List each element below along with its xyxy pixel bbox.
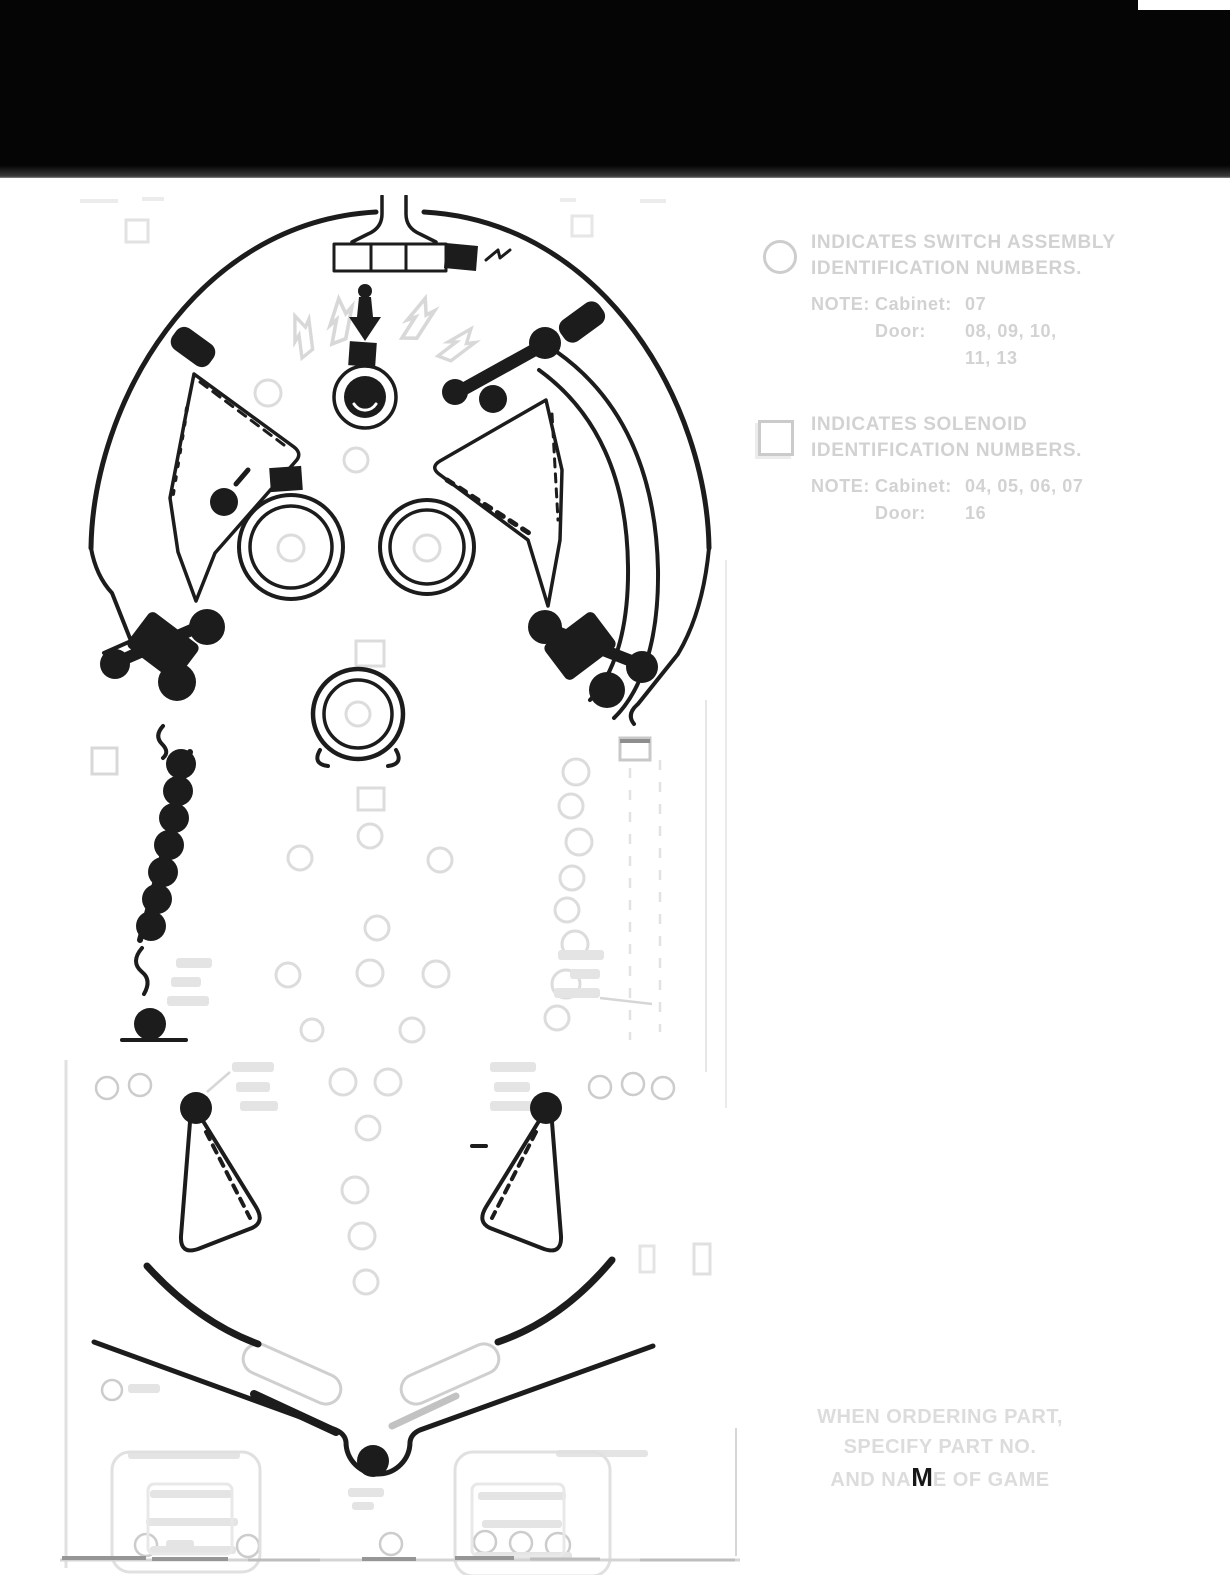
solenoid-note-row1: NOTE:Cabinet:04, 05, 06, 07 bbox=[811, 473, 1084, 500]
solenoid-legend-line1: INDICATES SOLENOID bbox=[811, 412, 1084, 438]
shooter-lane bbox=[352, 196, 436, 242]
solenoid-legend-line2: IDENTIFICATION NUMBERS. bbox=[811, 438, 1084, 464]
line3-highlight-M: M bbox=[911, 1462, 933, 1492]
switch-symbol-circle-icon bbox=[763, 240, 797, 274]
line3-post: E OF GAME bbox=[933, 1469, 1050, 1491]
door-value: 16 bbox=[965, 503, 986, 523]
left-jet-bumper bbox=[239, 495, 343, 599]
legend-solenoid-block: INDICATES SOLENOID IDENTIFICATION NUMBER… bbox=[752, 412, 1084, 527]
left-slingshot bbox=[180, 1092, 260, 1250]
illegible-annotations bbox=[128, 950, 648, 1560]
switch-legend-line1: INDICATES SWITCH ASSEMBLY bbox=[811, 230, 1116, 256]
line3-pre: AND NA bbox=[830, 1469, 911, 1491]
door-label: Door: bbox=[875, 500, 965, 527]
scanned-page: INDICATES SWITCH ASSEMBLY IDENTIFICATION… bbox=[0, 0, 1230, 1589]
edge-specks bbox=[80, 199, 666, 201]
cabinet-value: 07 bbox=[965, 294, 986, 314]
switch-note-row2: Door:08, 09, 10, bbox=[811, 318, 1116, 345]
door-value-line2: 11, 13 bbox=[965, 348, 1018, 368]
drain-ball bbox=[357, 1445, 389, 1477]
door-label: Door: bbox=[875, 318, 965, 345]
header-redaction-bar bbox=[0, 0, 1230, 178]
solenoid-square-dark bbox=[269, 466, 303, 492]
cabinet-label: Cabinet: bbox=[875, 291, 965, 318]
center-bumper bbox=[313, 669, 403, 766]
top-lane-guides bbox=[334, 243, 510, 271]
rollover-circles bbox=[255, 380, 592, 1294]
ordering-note-line1: WHEN ORDERING PART, bbox=[795, 1402, 1085, 1432]
note-label: NOTE: bbox=[811, 473, 875, 500]
bottom-edge bbox=[60, 1558, 740, 1560]
ink-layer bbox=[91, 196, 709, 1477]
corner-mark-left bbox=[126, 220, 148, 242]
annotation-leader-lines bbox=[207, 998, 652, 1092]
return-guides bbox=[147, 1260, 612, 1344]
switch-note-row3: 11, 13 bbox=[811, 345, 1116, 372]
top-bumper bbox=[334, 366, 396, 428]
ordering-note-line3: AND NAME OF GAME bbox=[795, 1462, 1085, 1495]
right-jet-bumper bbox=[380, 500, 474, 594]
header-notch bbox=[1138, 0, 1230, 10]
solenoid-note-row2: Door:16 bbox=[811, 500, 1084, 527]
right-kicker bbox=[528, 610, 658, 708]
drop-target-bank bbox=[122, 726, 196, 1040]
note-label: NOTE: bbox=[811, 291, 875, 318]
door-value-line1: 08, 09, 10, bbox=[965, 321, 1057, 341]
arch-outline bbox=[91, 212, 709, 548]
ordering-note: WHEN ORDERING PART, SPECIFY PART NO. AND… bbox=[795, 1402, 1085, 1495]
playfield-diagram bbox=[60, 195, 740, 1575]
ordering-note-line2: SPECIFY PART NO. bbox=[795, 1432, 1085, 1462]
cabinet-label: Cabinet: bbox=[875, 473, 965, 500]
right-slingshot bbox=[472, 1092, 562, 1250]
left-kicker bbox=[100, 609, 225, 701]
solenoid-symbol-square-icon bbox=[758, 420, 794, 456]
cabinet-value: 04, 05, 06, 07 bbox=[965, 476, 1084, 496]
right-lane-guide bbox=[435, 400, 562, 606]
plunger-arrow-icon bbox=[348, 284, 381, 367]
legend-switch-block: INDICATES SWITCH ASSEMBLY IDENTIFICATION… bbox=[755, 230, 1116, 372]
right-wall bbox=[631, 548, 709, 724]
corner-mark-right bbox=[572, 216, 592, 236]
switch-note-row1: NOTE:Cabinet:07 bbox=[811, 291, 1116, 318]
left-wall bbox=[91, 548, 131, 657]
arrow-doodle-icons bbox=[283, 295, 480, 368]
flipper-outlines bbox=[238, 1339, 503, 1409]
switch-legend-line2: IDENTIFICATION NUMBERS. bbox=[811, 256, 1116, 282]
